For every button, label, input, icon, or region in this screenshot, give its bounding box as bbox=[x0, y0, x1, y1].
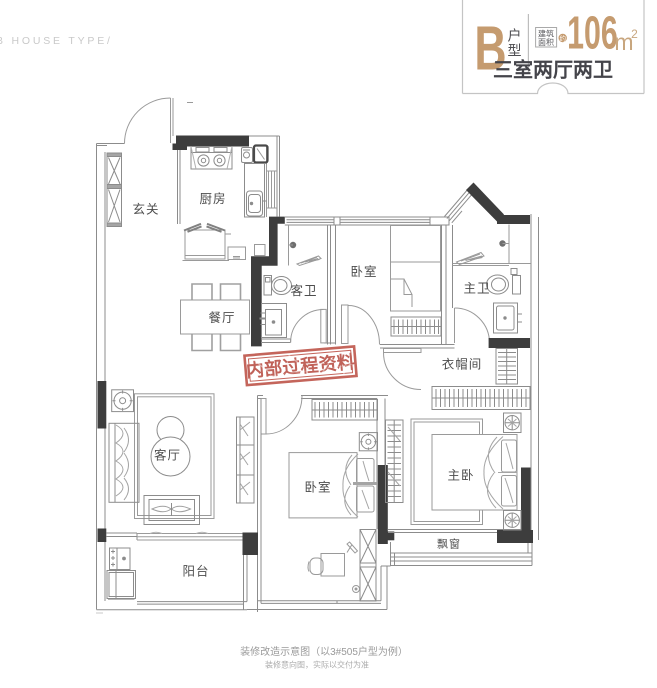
svg-text:客厅: 客厅 bbox=[154, 448, 181, 463]
svg-text:型: 型 bbox=[508, 43, 522, 59]
svg-text:B HOUSE TYPE/: B HOUSE TYPE/ bbox=[0, 35, 113, 47]
svg-text:装修意向图，实际以交付为准: 装修意向图，实际以交付为准 bbox=[265, 660, 369, 670]
svg-text:主卧: 主卧 bbox=[447, 469, 474, 483]
svg-text:厨房: 厨房 bbox=[199, 191, 226, 206]
svg-text:飘窗: 飘窗 bbox=[437, 537, 461, 551]
svg-text:衣帽间: 衣帽间 bbox=[442, 357, 483, 372]
svg-text:装修改造示意图（以3#505户型为例）: 装修改造示意图（以3#505户型为例） bbox=[240, 645, 408, 658]
svg-text:三室两厅两卫: 三室两厅两卫 bbox=[493, 58, 613, 82]
svg-text:约: 约 bbox=[559, 34, 566, 43]
svg-text:建筑: 建筑 bbox=[538, 29, 554, 39]
svg-text:106: 106 bbox=[567, 8, 618, 59]
svg-text:卧室: 卧室 bbox=[350, 264, 377, 279]
svg-text:户: 户 bbox=[508, 28, 522, 44]
svg-text:阳台: 阳台 bbox=[182, 564, 209, 579]
svg-text:面积: 面积 bbox=[538, 37, 554, 47]
svg-text:主卫: 主卫 bbox=[463, 282, 490, 296]
svg-text:餐厅: 餐厅 bbox=[208, 310, 235, 325]
svg-text:玄关: 玄关 bbox=[132, 202, 159, 217]
svg-text:2: 2 bbox=[631, 27, 638, 41]
svg-text:客卫: 客卫 bbox=[290, 283, 317, 298]
svg-text:卧室: 卧室 bbox=[304, 480, 331, 495]
